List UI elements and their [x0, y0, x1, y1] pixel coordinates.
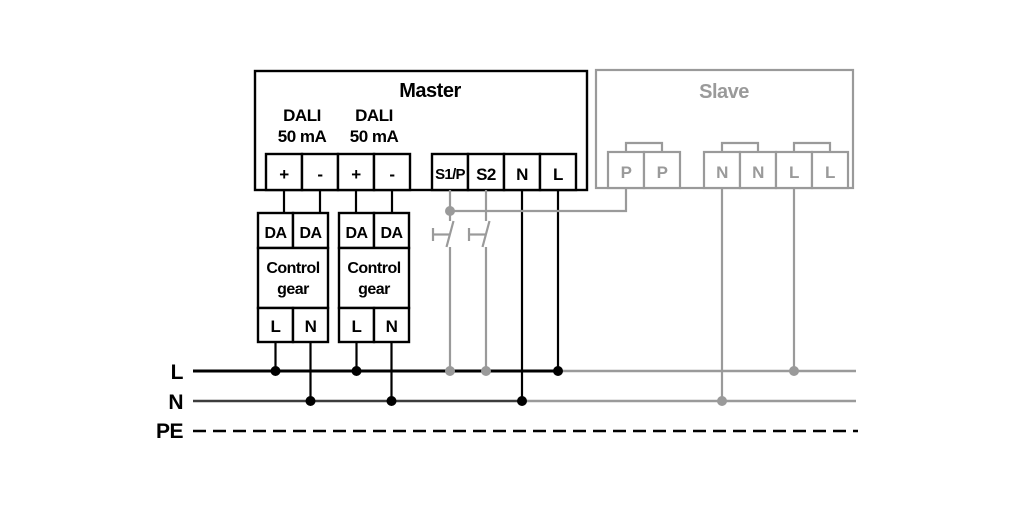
cg2-label-n: N	[386, 317, 398, 336]
cg1-body	[258, 248, 328, 308]
junction-cg1-n	[306, 396, 316, 406]
cg1-label-l: L	[271, 317, 281, 336]
bus-label-l: L	[171, 361, 184, 384]
junction-s1p-l	[445, 366, 455, 376]
dali-bus1-label-line1: DALI	[283, 106, 321, 125]
master-title: Master	[399, 80, 461, 102]
master-terminal-label-n: N	[516, 165, 528, 184]
cg1-name-line1: Control	[266, 260, 319, 277]
power-bus: L N PE	[156, 361, 858, 443]
junction-cg2-l	[352, 366, 362, 376]
slave-terminal-label-p1: P	[621, 163, 632, 182]
junction-s2-l	[481, 366, 491, 376]
dali-bus2-label-line1: DALI	[355, 106, 393, 125]
slave-title: Slave	[699, 81, 749, 103]
slave-terminal-label-p2: P	[657, 163, 668, 182]
master-terminal-label-minus2: -	[389, 165, 394, 184]
slave-terminal-label-l1: L	[789, 163, 799, 182]
cg2-label-da2: DA	[380, 225, 403, 242]
control-gear-2: DA DA Control gear L N	[339, 213, 409, 342]
dali-bus1-label-line2: 50 mA	[278, 127, 327, 146]
master-terminal-label-plus2: +	[351, 165, 361, 184]
cg2-label-l: L	[352, 317, 362, 336]
master-terminal-label-l: L	[553, 165, 563, 184]
cg1-label-da1: DA	[264, 225, 287, 242]
slave-wires	[450, 188, 794, 401]
dali-wires	[284, 190, 392, 213]
cg2-body	[339, 248, 409, 308]
wiring-diagram: Master DALI 50 mA DALI 50 mA + - + - S1/…	[0, 0, 1016, 531]
cg1-name-line2: gear	[277, 281, 309, 298]
junction-master-l	[553, 366, 563, 376]
wire-slave-p-to-s1p	[450, 188, 626, 211]
cg1-label-da2: DA	[299, 225, 322, 242]
junction-cg2-n	[387, 396, 397, 406]
slave-terminal-label-l2: L	[825, 163, 835, 182]
slave-terminal-label-n2: N	[752, 163, 764, 182]
junction-s1p-slave-p	[445, 206, 455, 216]
junction-cg1-l	[271, 366, 281, 376]
cg2-name-line1: Control	[347, 260, 400, 277]
cg2-label-da1: DA	[345, 225, 368, 242]
master-terminal-label-s1p: S1/P	[435, 166, 465, 183]
master-terminal-label-plus1: +	[279, 165, 289, 184]
bus-label-n: N	[168, 391, 183, 414]
dali-bus2-label-line2: 50 mA	[350, 127, 399, 146]
slave-terminal-label-n1: N	[716, 163, 728, 182]
control-gear-1: DA DA Control gear L N	[258, 213, 328, 342]
junction-slave-n	[717, 396, 727, 406]
master-terminal-label-s2: S2	[476, 165, 496, 184]
slave-unit: Slave P P N N L L	[596, 70, 853, 188]
master-unit: Master DALI 50 mA DALI 50 mA + - + - S1/…	[255, 71, 587, 190]
diagram-canvas: Master DALI 50 mA DALI 50 mA + - + - S1/…	[0, 0, 1016, 531]
cg1-label-n: N	[305, 317, 317, 336]
cg2-name-line2: gear	[358, 281, 390, 298]
switch-circuit-s2	[469, 190, 490, 371]
bus-label-pe: PE	[156, 420, 184, 443]
junction-slave-l	[789, 366, 799, 376]
master-terminal-label-minus1: -	[317, 165, 322, 184]
junction-master-n	[517, 396, 527, 406]
switch-circuit-s1p	[433, 190, 454, 371]
